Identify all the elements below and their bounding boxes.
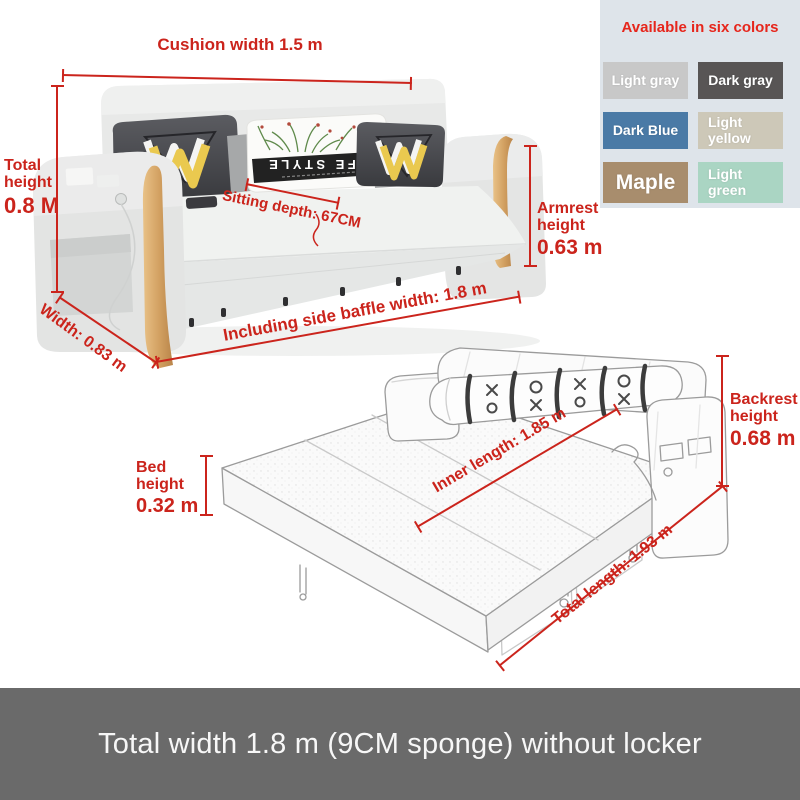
color-swatches: Light gray Dark gray Dark Blue Light yel…	[603, 62, 800, 203]
caption-text: Total width 1.8 m (9CM sponge) without l…	[98, 728, 702, 761]
backrest-height-value: 0.68 m	[730, 428, 800, 451]
armrest-height-dimension-line	[529, 145, 531, 267]
swatch-label: Dark gray	[708, 73, 773, 88]
color-swatch-light-green: Light green	[698, 162, 783, 203]
color-swatch-dark-blue: Dark Blue	[603, 112, 688, 149]
usb-port	[116, 194, 127, 205]
cushion-width-label: Cushion width 1.5 m	[140, 36, 340, 54]
total-height-label: Total height	[4, 157, 62, 192]
color-options-panel: Available in six colors Light gray Dark …	[600, 0, 800, 208]
sofa-bed-sketch	[222, 348, 728, 655]
backrest-height-label: Backrest height	[730, 391, 800, 426]
bed-height-value: 0.32 m	[136, 496, 194, 518]
bed-height-label: Bed height	[136, 459, 194, 494]
total-height-annotation: Total height 0.8 M	[4, 157, 62, 217]
caption-bar: Total width 1.8 m (9CM sponge) without l…	[0, 688, 800, 800]
swatch-label: Light green	[708, 167, 760, 198]
remote-on-seat	[186, 196, 218, 209]
armrest-height-annotation: Armrest height 0.63 m	[537, 200, 613, 259]
usb-panel	[66, 167, 94, 185]
color-panel-title: Available in six colors	[600, 19, 800, 36]
swatch-label: Light yellow	[708, 115, 760, 146]
swatch-label: Maple	[616, 171, 676, 194]
total-height-value: 0.8 M	[4, 194, 62, 218]
armrest-height-value: 0.63 m	[537, 237, 613, 260]
bed-height-annotation: Bed height 0.32 m	[136, 459, 194, 517]
color-swatch-maple: Maple	[603, 162, 688, 203]
swatch-label: Light gray	[612, 73, 680, 88]
color-swatch-light-yellow: Light yellow	[698, 112, 783, 149]
swatch-label: Dark Blue	[613, 123, 678, 138]
bed-height-dimension-line	[205, 455, 207, 516]
color-swatch-light-gray: Light gray	[603, 62, 688, 99]
product-spec-image: LIFE STYLE	[0, 0, 800, 800]
color-swatch-dark-gray: Dark gray	[698, 62, 783, 99]
dark-pillow-right	[356, 122, 445, 187]
backrest-height-dimension-line	[721, 355, 723, 487]
backrest-height-annotation: Backrest height 0.68 m	[730, 391, 800, 450]
